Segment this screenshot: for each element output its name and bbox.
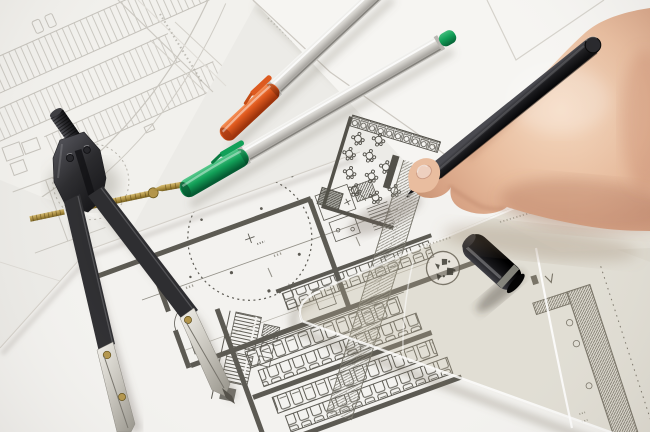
photo-architect-drafting: Architect's right hand drawing with a bl… <box>0 0 650 432</box>
vignette-overlay <box>0 0 650 432</box>
